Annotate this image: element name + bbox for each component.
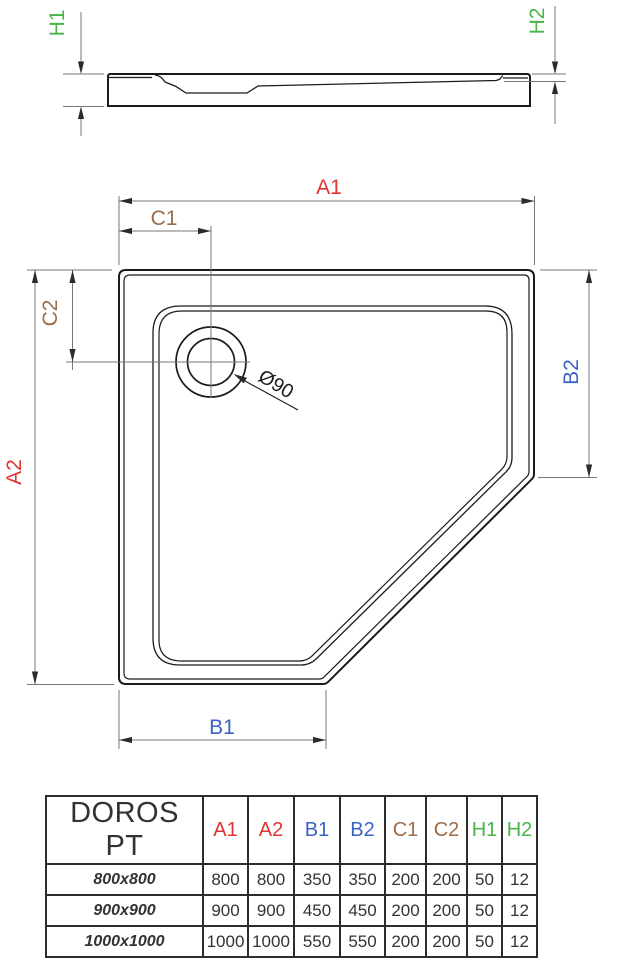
- side-view-basin-profile: [155, 75, 503, 93]
- side-view-outline: [108, 74, 530, 106]
- dimension-c1: C1: [119, 207, 211, 234]
- h2-arrow-down: [552, 62, 558, 75]
- dimension-b1: B1: [119, 690, 326, 749]
- h2-label: H2: [526, 8, 549, 35]
- column-header-b1: B1: [294, 796, 340, 864]
- side-view: [108, 74, 530, 106]
- a2-arrow-down: [32, 672, 38, 685]
- h2-arrow-up: [552, 82, 558, 95]
- value-cell-c2: 200: [426, 864, 467, 895]
- a2-label: A2: [3, 459, 26, 485]
- value-cell-b1: 350: [294, 864, 340, 895]
- b2-arrow-up: [586, 270, 592, 283]
- column-header-h1: H1: [467, 796, 502, 864]
- c2-arrow-down: [69, 349, 75, 362]
- value-cell-h1: 50: [467, 864, 502, 895]
- dimension-a2: A2: [3, 270, 114, 685]
- h1-arrow-up: [78, 107, 84, 120]
- value-cell-a2: 900: [248, 895, 294, 926]
- c1-arrow-right: [198, 228, 211, 234]
- value-cell-c1: 200: [385, 895, 426, 926]
- spec-row-800x800: 800x8008008003503502002005012: [46, 864, 537, 895]
- tray-outer-edge: [119, 270, 534, 684]
- a1-arrow-left: [119, 198, 132, 204]
- value-cell-h2: 12: [502, 895, 537, 926]
- drain-centerlines: [66, 226, 250, 398]
- value-cell-h1: 50: [467, 895, 502, 926]
- a1-arrow-right: [522, 198, 535, 204]
- b1-arrow-left: [119, 737, 132, 743]
- value-cell-a1: 800: [203, 864, 248, 895]
- b1-label: B1: [209, 716, 235, 739]
- drawing-canvas: H1 H2 A1: [0, 0, 632, 790]
- drain-callout: Ø90: [234, 365, 299, 410]
- value-cell-c1: 200: [385, 864, 426, 895]
- basin-outer-contour: [153, 306, 512, 665]
- value-cell-a1: 900: [203, 895, 248, 926]
- product-name-header: DOROS PT: [46, 796, 203, 864]
- spec-row-1000x1000: 1000x1000100010005505502002005012: [46, 926, 537, 957]
- b1-arrow-right: [313, 737, 326, 743]
- column-header-h2: H2: [502, 796, 537, 864]
- technical-drawing-page: H1 H2 A1: [0, 0, 632, 958]
- h1-label: H1: [46, 10, 69, 37]
- dimension-h1: H1: [46, 10, 104, 136]
- value-cell-b1: 550: [294, 926, 340, 957]
- a1-label: A1: [316, 176, 342, 199]
- spec-row-900x900: 900x9009009004504502002005012: [46, 895, 537, 926]
- a2-extension-lines: [27, 270, 114, 685]
- h1-extension-lines: [63, 74, 104, 107]
- column-header-a2: A2: [248, 796, 294, 864]
- dimension-b2: B2: [538, 270, 597, 478]
- value-cell-h1: 50: [467, 926, 502, 957]
- b2-label: B2: [560, 359, 583, 385]
- value-cell-h2: 12: [502, 926, 537, 957]
- value-cell-a2: 800: [248, 864, 294, 895]
- size-cell: 900x900: [46, 895, 203, 926]
- c1-label: C1: [151, 207, 178, 230]
- column-header-c2: C2: [426, 796, 467, 864]
- value-cell-b1: 450: [294, 895, 340, 926]
- column-header-a1: A1: [203, 796, 248, 864]
- b2-arrow-down: [586, 465, 592, 478]
- value-cell-b2: 450: [340, 895, 385, 926]
- value-cell-b2: 350: [340, 864, 385, 895]
- dimension-a1: A1: [119, 176, 535, 265]
- c2-label: C2: [39, 300, 62, 327]
- dimension-c2: C2: [39, 270, 76, 370]
- spec-table-header-row: DOROS PT A1A2B1B2C1C2H1H2: [46, 796, 537, 864]
- value-cell-b2: 550: [340, 926, 385, 957]
- c1-arrow-left: [119, 228, 132, 234]
- value-cell-a1: 1000: [203, 926, 248, 957]
- tray-inner-rim: [124, 275, 529, 679]
- value-cell-c2: 200: [426, 895, 467, 926]
- a2-arrow-up: [32, 270, 38, 283]
- plan-view: [119, 270, 534, 684]
- column-header-b2: B2: [340, 796, 385, 864]
- size-cell: 1000x1000: [46, 926, 203, 957]
- size-cell: 800x800: [46, 864, 203, 895]
- spec-table: DOROS PT A1A2B1B2C1C2H1H2 800x8008008003…: [45, 795, 538, 958]
- c2-arrow-up: [69, 270, 75, 283]
- value-cell-c1: 200: [385, 926, 426, 957]
- h1-arrow-down: [78, 62, 84, 75]
- column-header-c1: C1: [385, 796, 426, 864]
- value-cell-h2: 12: [502, 864, 537, 895]
- value-cell-c2: 200: [426, 926, 467, 957]
- value-cell-a2: 1000: [248, 926, 294, 957]
